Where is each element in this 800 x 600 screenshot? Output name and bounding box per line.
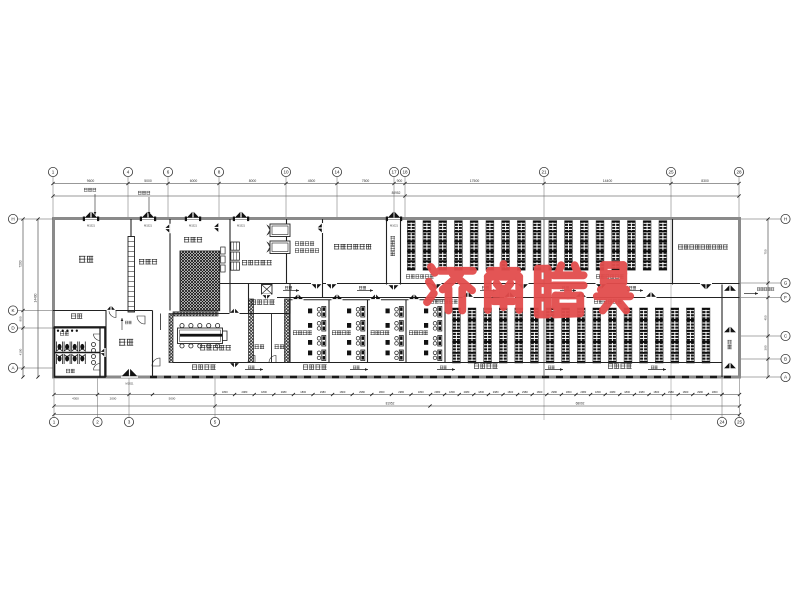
svg-text:2980: 2980 [580,390,586,394]
svg-text:2980: 2980 [359,390,365,394]
svg-text:1800: 1800 [418,390,424,394]
svg-text:8: 8 [218,170,221,175]
svg-text:14: 14 [334,170,340,175]
svg-text:14400: 14400 [34,293,38,302]
svg-text:2980: 2980 [398,390,404,394]
svg-text:6000: 6000 [190,179,198,183]
svg-text:17: 17 [391,170,397,175]
svg-text:4500: 4500 [308,179,316,183]
svg-text:1800: 1800 [712,390,718,394]
svg-text:68092: 68092 [576,402,585,406]
svg-text:10: 10 [283,170,289,175]
svg-text:21: 21 [541,170,547,175]
svg-text:2: 2 [96,420,99,425]
svg-text:24: 24 [719,420,725,425]
svg-text:G: G [784,281,788,286]
svg-text:1800: 1800 [537,390,543,394]
svg-text:2980: 2980 [697,390,703,394]
svg-text:2980: 2980 [668,390,674,394]
svg-text:1800: 1800 [340,390,346,394]
svg-text:2980: 2980 [493,390,499,394]
svg-text:14400: 14400 [603,179,613,183]
svg-text:H: H [11,217,14,222]
svg-text:1: 1 [52,170,55,175]
svg-text:2980: 2980 [281,390,287,394]
svg-text:1800: 1800 [653,390,659,394]
svg-text:1800: 1800 [683,390,689,394]
svg-text:4300: 4300 [72,397,79,401]
svg-text:F: F [784,295,787,300]
svg-text:2980: 2980 [242,390,248,394]
svg-text:8000: 8000 [249,179,257,183]
svg-text:25: 25 [737,420,743,425]
svg-text:80952: 80952 [392,191,401,195]
svg-text:6: 6 [167,170,170,175]
svg-text:5000: 5000 [169,397,176,401]
svg-text:M1521: M1521 [144,224,152,228]
svg-text:8300: 8300 [701,179,709,183]
svg-text:1800: 1800 [624,390,630,394]
svg-text:900: 900 [397,179,403,183]
svg-text:M1021: M1021 [390,224,398,228]
svg-text:1800: 1800 [595,390,601,394]
svg-text:M1821: M1821 [126,382,134,386]
svg-text:M1521: M1521 [189,224,197,228]
svg-text:1800: 1800 [379,390,385,394]
svg-text:1800: 1800 [300,390,306,394]
svg-text:900: 900 [19,316,23,321]
svg-text:7500: 7500 [362,179,370,183]
svg-text:B: B [784,357,787,362]
svg-text:2980: 2980 [464,390,470,394]
svg-text:4100: 4100 [19,348,23,355]
svg-text:25: 25 [668,170,674,175]
svg-text:81952: 81952 [386,402,395,406]
svg-text:7200: 7200 [19,260,23,267]
svg-text:9600: 9600 [87,179,95,183]
svg-text:1800: 1800 [478,390,484,394]
svg-text:2000: 2000 [110,397,117,401]
svg-text:3: 3 [128,420,131,425]
svg-text:1: 1 [53,420,56,425]
svg-text:750: 750 [764,249,768,254]
svg-text:5000: 5000 [144,179,152,183]
svg-text:M1521: M1521 [237,224,245,228]
svg-text:1800: 1800 [507,390,513,394]
svg-text:390: 390 [764,345,768,350]
svg-text:1800: 1800 [222,390,228,394]
svg-text:1800: 1800 [449,390,455,394]
svg-text:2980: 2980 [434,390,440,394]
svg-text:2980: 2980 [522,390,528,394]
svg-text:M1521: M1521 [87,224,95,228]
svg-text:2980: 2980 [320,390,326,394]
svg-text:1800: 1800 [261,390,267,394]
svg-text:17500: 17500 [470,179,480,183]
svg-text:18: 18 [402,170,408,175]
svg-text:5: 5 [214,420,217,425]
svg-text:2980: 2980 [639,390,645,394]
svg-text:H: H [784,217,787,222]
svg-text:4: 4 [127,170,130,175]
svg-text:2980: 2980 [551,390,557,394]
svg-text:450: 450 [764,315,768,320]
svg-text:1800: 1800 [566,390,572,394]
svg-text:28: 28 [736,170,742,175]
svg-text:2980: 2980 [610,390,616,394]
